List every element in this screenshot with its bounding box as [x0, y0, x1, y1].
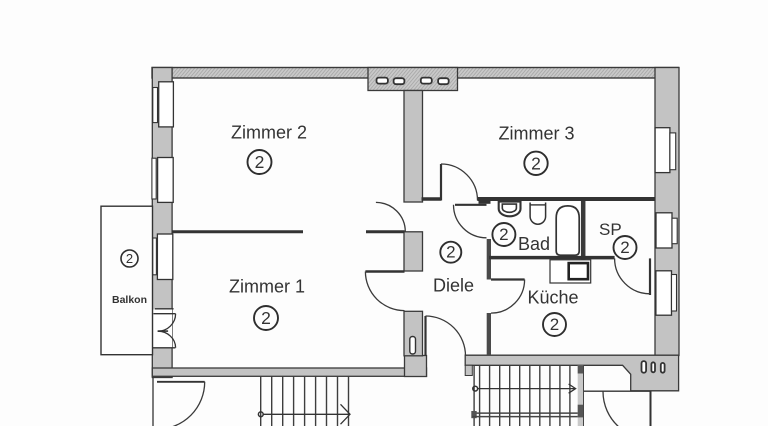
svg-text:2: 2: [446, 243, 455, 262]
svg-text:Zimmer 1: Zimmer 1: [229, 276, 305, 296]
svg-text:Zimmer 2: Zimmer 2: [231, 123, 307, 143]
svg-text:2: 2: [550, 315, 559, 334]
svg-text:SP: SP: [599, 220, 622, 239]
svg-text:2: 2: [261, 308, 271, 328]
svg-text:Diele: Diele: [433, 276, 474, 296]
svg-text:Zimmer 3: Zimmer 3: [499, 123, 575, 143]
svg-text:2: 2: [499, 225, 508, 244]
svg-text:2: 2: [255, 152, 265, 172]
svg-text:2: 2: [126, 251, 133, 266]
svg-text:2: 2: [531, 153, 541, 173]
svg-text:2: 2: [620, 238, 629, 257]
svg-text:Balkon: Balkon: [112, 294, 147, 306]
svg-text:Bad: Bad: [518, 234, 550, 254]
svg-text:Küche: Küche: [528, 288, 579, 308]
